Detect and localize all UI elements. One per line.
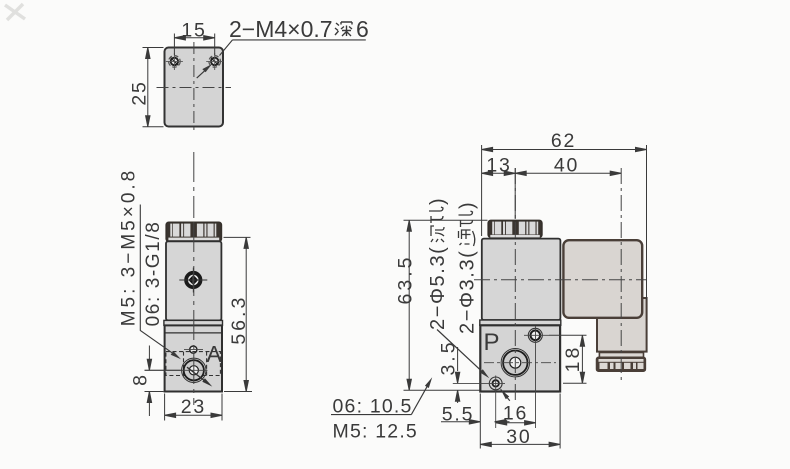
svg-text:25: 25: [129, 80, 151, 105]
svg-text:2−Φ3.3(: 2−Φ3.3(: [457, 250, 479, 334]
svg-text:40: 40: [554, 155, 579, 177]
svg-text:56.3: 56.3: [228, 295, 250, 345]
svg-text:6: 6: [356, 16, 369, 42]
svg-text:M5: 12.5: M5: 12.5: [333, 421, 418, 443]
svg-text:16: 16: [503, 403, 528, 425]
svg-text:M5: 3−M5×0.8: M5: 3−M5×0.8: [119, 168, 140, 327]
svg-text:): ): [427, 198, 449, 205]
svg-text:5.5: 5.5: [442, 403, 475, 425]
svg-text:): ): [457, 202, 479, 209]
svg-text:30: 30: [506, 426, 531, 448]
svg-text:2−Φ5.3(: 2−Φ5.3(: [427, 246, 449, 330]
svg-text:15: 15: [181, 20, 206, 42]
svg-text:63.5: 63.5: [394, 255, 416, 305]
svg-text:62: 62: [551, 130, 576, 152]
svg-text:13: 13: [486, 155, 511, 177]
svg-text:3.5: 3.5: [438, 339, 460, 375]
svg-text:2−M4×0.7: 2−M4×0.7: [229, 16, 333, 42]
svg-text:8: 8: [129, 375, 151, 386]
svg-text:23: 23: [181, 396, 206, 418]
svg-text:06: 3-G1/8: 06: 3-G1/8: [143, 221, 164, 327]
svg-text:18: 18: [562, 345, 584, 373]
svg-text:A: A: [206, 341, 222, 367]
svg-text:P: P: [483, 329, 499, 356]
